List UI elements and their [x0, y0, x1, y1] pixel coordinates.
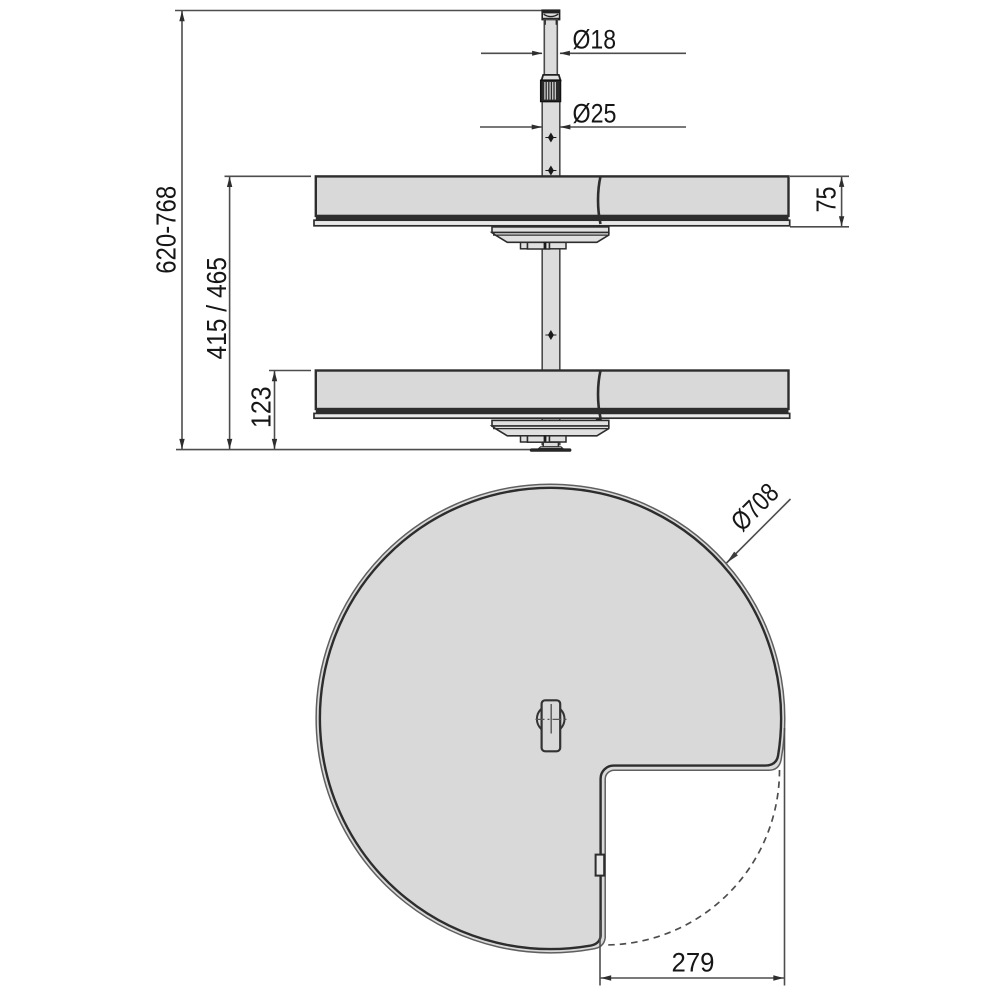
svg-text:Ø18: Ø18	[573, 25, 617, 55]
svg-text:415 / 465: 415 / 465	[201, 257, 232, 360]
svg-text:Ø25: Ø25	[573, 98, 617, 128]
svg-text:620-768: 620-768	[150, 186, 181, 274]
svg-text:123: 123	[245, 386, 276, 428]
svg-text:75: 75	[811, 187, 842, 213]
svg-text:279: 279	[672, 948, 715, 978]
